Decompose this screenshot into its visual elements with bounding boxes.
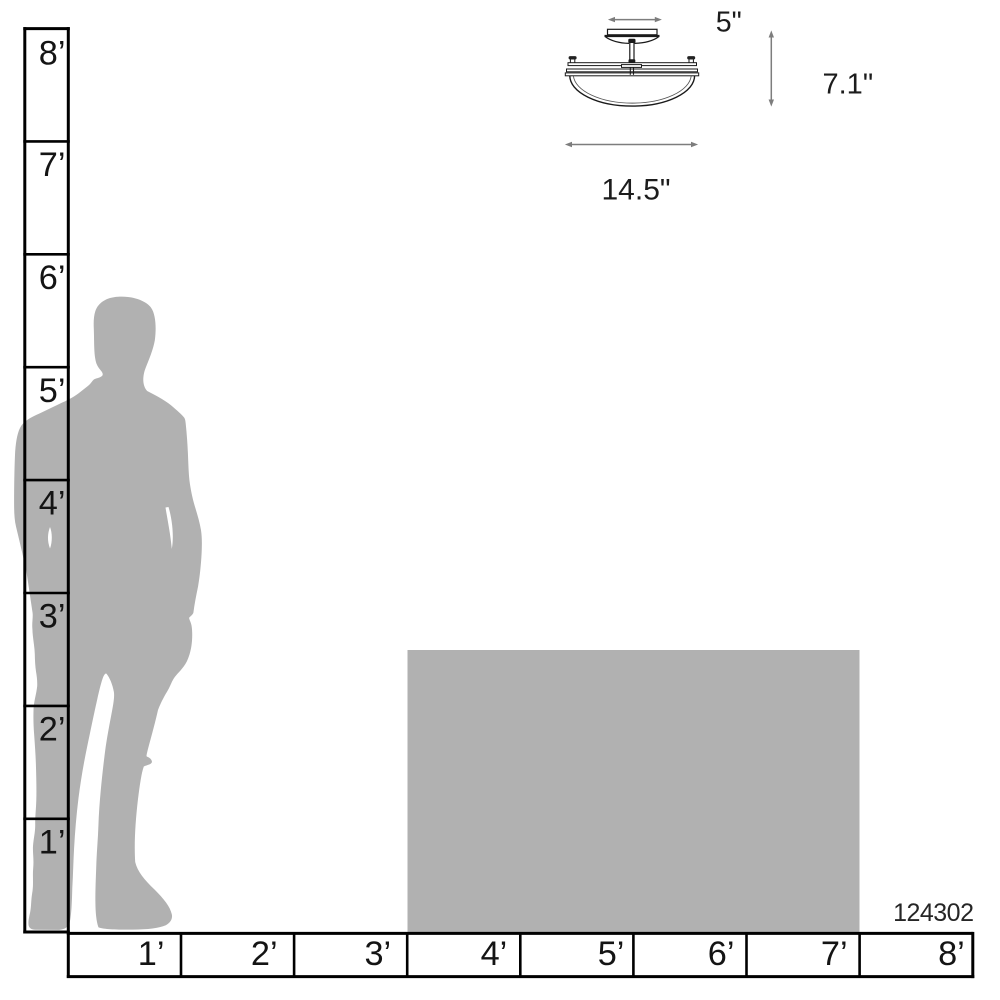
- svg-text:2’: 2’: [251, 935, 278, 973]
- svg-text:8’: 8’: [938, 935, 965, 973]
- svg-text:124302: 124302: [893, 899, 973, 927]
- svg-text:7’: 7’: [39, 146, 66, 184]
- svg-text:5": 5": [716, 7, 742, 39]
- svg-text:1’: 1’: [138, 935, 165, 973]
- svg-text:2’: 2’: [39, 711, 66, 749]
- svg-text:8’: 8’: [39, 35, 66, 73]
- svg-text:7’: 7’: [821, 935, 848, 973]
- svg-text:7.1": 7.1": [823, 69, 874, 101]
- svg-text:6’: 6’: [708, 935, 735, 973]
- svg-text:3’: 3’: [364, 935, 391, 973]
- svg-text:14.5": 14.5": [602, 174, 671, 207]
- svg-text:1’: 1’: [39, 823, 66, 861]
- svg-text:6’: 6’: [39, 259, 66, 297]
- svg-text:4’: 4’: [39, 485, 66, 523]
- svg-text:3’: 3’: [39, 598, 66, 636]
- svg-text:4’: 4’: [481, 935, 508, 973]
- svg-text:5’: 5’: [598, 935, 625, 973]
- svg-text:5’: 5’: [39, 372, 66, 410]
